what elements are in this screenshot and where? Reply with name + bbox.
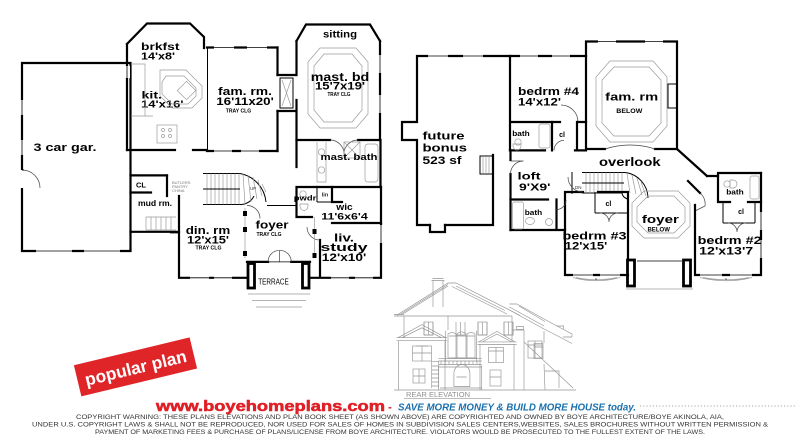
svg-text:CL: CL: [136, 181, 146, 190]
svg-text:REAR ELEVATION: REAR ELEVATION: [406, 390, 470, 399]
svg-text:bath: bath: [512, 131, 530, 138]
svg-text:www.boyehomeplans.com: www.boyehomeplans.com: [155, 398, 385, 415]
svg-text:9'X9': 9'X9': [519, 183, 551, 194]
svg-text:12'x15': 12'x15': [565, 241, 608, 253]
svg-text:mast. bath: mast. bath: [321, 152, 378, 162]
svg-text:pwdr: pwdr: [294, 193, 317, 202]
svg-text:overlook: overlook: [599, 157, 661, 169]
svg-text:lin: lin: [322, 193, 329, 199]
svg-text:TRAY CLG: TRAY CLG: [257, 232, 282, 238]
svg-text:mud rm.: mud rm.: [138, 198, 172, 208]
svg-text:14'x16': 14'x16': [141, 100, 184, 111]
svg-text:11'6x6'4: 11'6x6'4: [321, 211, 368, 221]
svg-text:TRAY CLG: TRAY CLG: [226, 109, 252, 115]
svg-text:fam. rm: fam. rm: [605, 91, 658, 103]
svg-text:foyer: foyer: [256, 219, 290, 231]
svg-text:3 car gar.: 3 car gar.: [34, 142, 97, 154]
svg-text:UNDER U.S. COPYRIGHT LAWS & SH: UNDER U.S. COPYRIGHT LAWS & SHALL NOT BE…: [32, 422, 769, 429]
svg-text:TERRACE: TERRACE: [258, 277, 289, 287]
svg-text:14'x8': 14'x8': [141, 52, 175, 63]
svg-text:TRAY CLG: TRAY CLG: [196, 245, 222, 251]
svg-text:loft: loft: [518, 172, 542, 183]
svg-text:bath: bath: [525, 210, 543, 217]
svg-text:bath: bath: [726, 190, 744, 197]
svg-text:BELOW: BELOW: [616, 108, 643, 115]
svg-text:-: -: [388, 402, 392, 414]
svg-text:DN: DN: [575, 185, 582, 190]
svg-text:BELOW: BELOW: [647, 227, 670, 234]
svg-text:CHINA: CHINA: [172, 188, 185, 193]
svg-text:COPYRIGHT WARNING: THESE PLANS: COPYRIGHT WARNING: THESE PLANS ELEVATION…: [76, 414, 724, 421]
svg-text:cl: cl: [605, 201, 611, 208]
svg-text:523 sf: 523 sf: [423, 155, 462, 167]
svg-text:15'7x19': 15'7x19': [315, 81, 365, 93]
svg-text:PAYMENT OF MARKETING FEES & PU: PAYMENT OF MARKETING FEES & PURCHASE OF …: [95, 429, 705, 436]
svg-text:foyer: foyer: [642, 214, 680, 226]
svg-text:cl: cl: [738, 209, 744, 216]
svg-text:12'x10': 12'x10': [322, 252, 367, 264]
svg-text:UP: UP: [250, 186, 256, 191]
svg-text:SAVE MORE MONEY & BUILD MORE H: SAVE MORE MONEY & BUILD MORE HOUSE today…: [398, 403, 636, 414]
svg-text:bonus: bonus: [423, 143, 468, 155]
svg-text:cl: cl: [559, 132, 565, 139]
svg-text:16'11x20': 16'11x20': [216, 96, 274, 108]
svg-text:TRAY CLG: TRAY CLG: [328, 92, 351, 98]
svg-text:sitting: sitting: [323, 30, 357, 41]
svg-text:14'x12': 14'x12': [518, 97, 561, 109]
svg-text:future: future: [423, 130, 465, 142]
svg-text:12'x13'7: 12'x13'7: [699, 245, 753, 257]
